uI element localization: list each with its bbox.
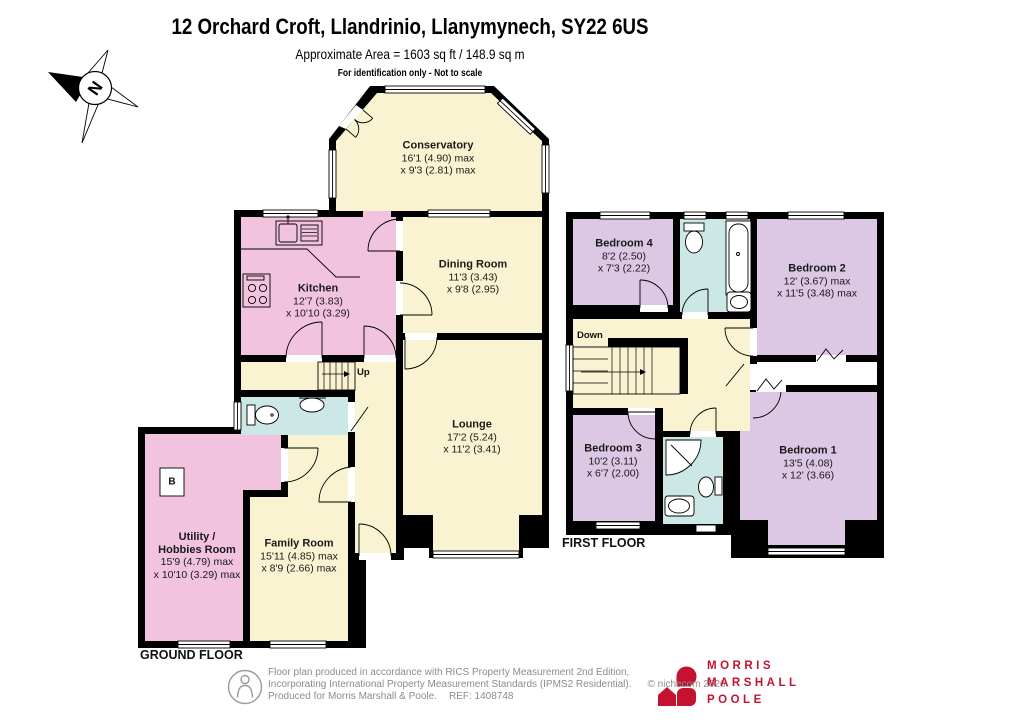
room-label-bedroom1: Bedroom 1 13'5 (4.08) x 12' (3.66) bbox=[779, 444, 836, 482]
room-label-family: Family Room 15'11 (4.85) max x 8'9 (2.66… bbox=[260, 537, 338, 575]
reference-number: REF: 1408748 bbox=[449, 691, 514, 702]
bathroom-sink-icon bbox=[727, 292, 751, 312]
identification-note: For identification only - Not to scale bbox=[62, 68, 759, 79]
room-label-bedroom3: Bedroom 3 10'2 (3.11) x 6'7 (2.00) bbox=[584, 442, 641, 480]
footer-line-3: Produced for Morris Marshall & Poole.REF… bbox=[268, 691, 728, 703]
stairs-up-label: Up bbox=[357, 367, 370, 378]
room-label-utility: Utility / Hobbies Room 15'9 (4.79) max x… bbox=[154, 531, 241, 581]
footer-line-1: Floor plan produced in accordance with R… bbox=[268, 667, 728, 679]
room-label-kitchen: Kitchen 12'7 (3.83) x 10'10 (3.29) bbox=[286, 282, 350, 320]
room-label-conservatory: Conservatory 16'1 (4.90) max x 9'3 (2.81… bbox=[401, 139, 476, 177]
brand-name-marshall: MARSHALL bbox=[707, 677, 800, 689]
lounge-bay bbox=[433, 515, 519, 551]
stairs-down-label: Down bbox=[577, 330, 603, 341]
first-floor-label: FIRST FLOOR bbox=[562, 536, 645, 550]
floorplan-page: N bbox=[0, 0, 1020, 721]
room-label-bedroom4: Bedroom 4 8'2 (2.50) x 7'3 (2.22) bbox=[595, 237, 652, 275]
room-label-bedroom2: Bedroom 2 12' (3.67) max x 11'5 (3.48) m… bbox=[777, 262, 857, 300]
brand-name-morris: MORRIS bbox=[707, 660, 774, 672]
conservatory-opening bbox=[363, 211, 391, 217]
room-label-lounge: Lounge 17'2 (5.24) x 11'2 (3.41) bbox=[443, 418, 500, 456]
floor-plan-drawing: N bbox=[0, 0, 1020, 721]
shower-sink-icon bbox=[665, 496, 694, 516]
ground-floor-label: GROUND FLOOR bbox=[140, 648, 243, 662]
wardrobe-strip bbox=[757, 362, 877, 385]
landing-column bbox=[663, 319, 750, 431]
footer-disclaimer: Floor plan produced in accordance with R… bbox=[268, 667, 728, 702]
brand-name-poole: POOLE bbox=[707, 694, 765, 706]
compass-icon: N bbox=[48, 50, 138, 143]
page-title: 12 Orchard Croft, Llandrinio, Llanymynec… bbox=[62, 14, 759, 40]
bathroom-toilet-icon bbox=[684, 223, 704, 253]
approximate-area: Approximate Area = 1603 sq ft / 148.9 sq… bbox=[62, 46, 759, 62]
wc-toilet-icon bbox=[247, 405, 279, 425]
person-scale-icon bbox=[229, 671, 262, 704]
room-label-dining: Dining Room 11'3 (3.43) x 9'8 (2.95) bbox=[439, 258, 507, 296]
shower-toilet-icon bbox=[699, 477, 723, 497]
bath-icon bbox=[726, 221, 751, 295]
boiler-label: B bbox=[168, 477, 175, 488]
footer-line-2: Incorporating International Property Mea… bbox=[268, 679, 728, 691]
